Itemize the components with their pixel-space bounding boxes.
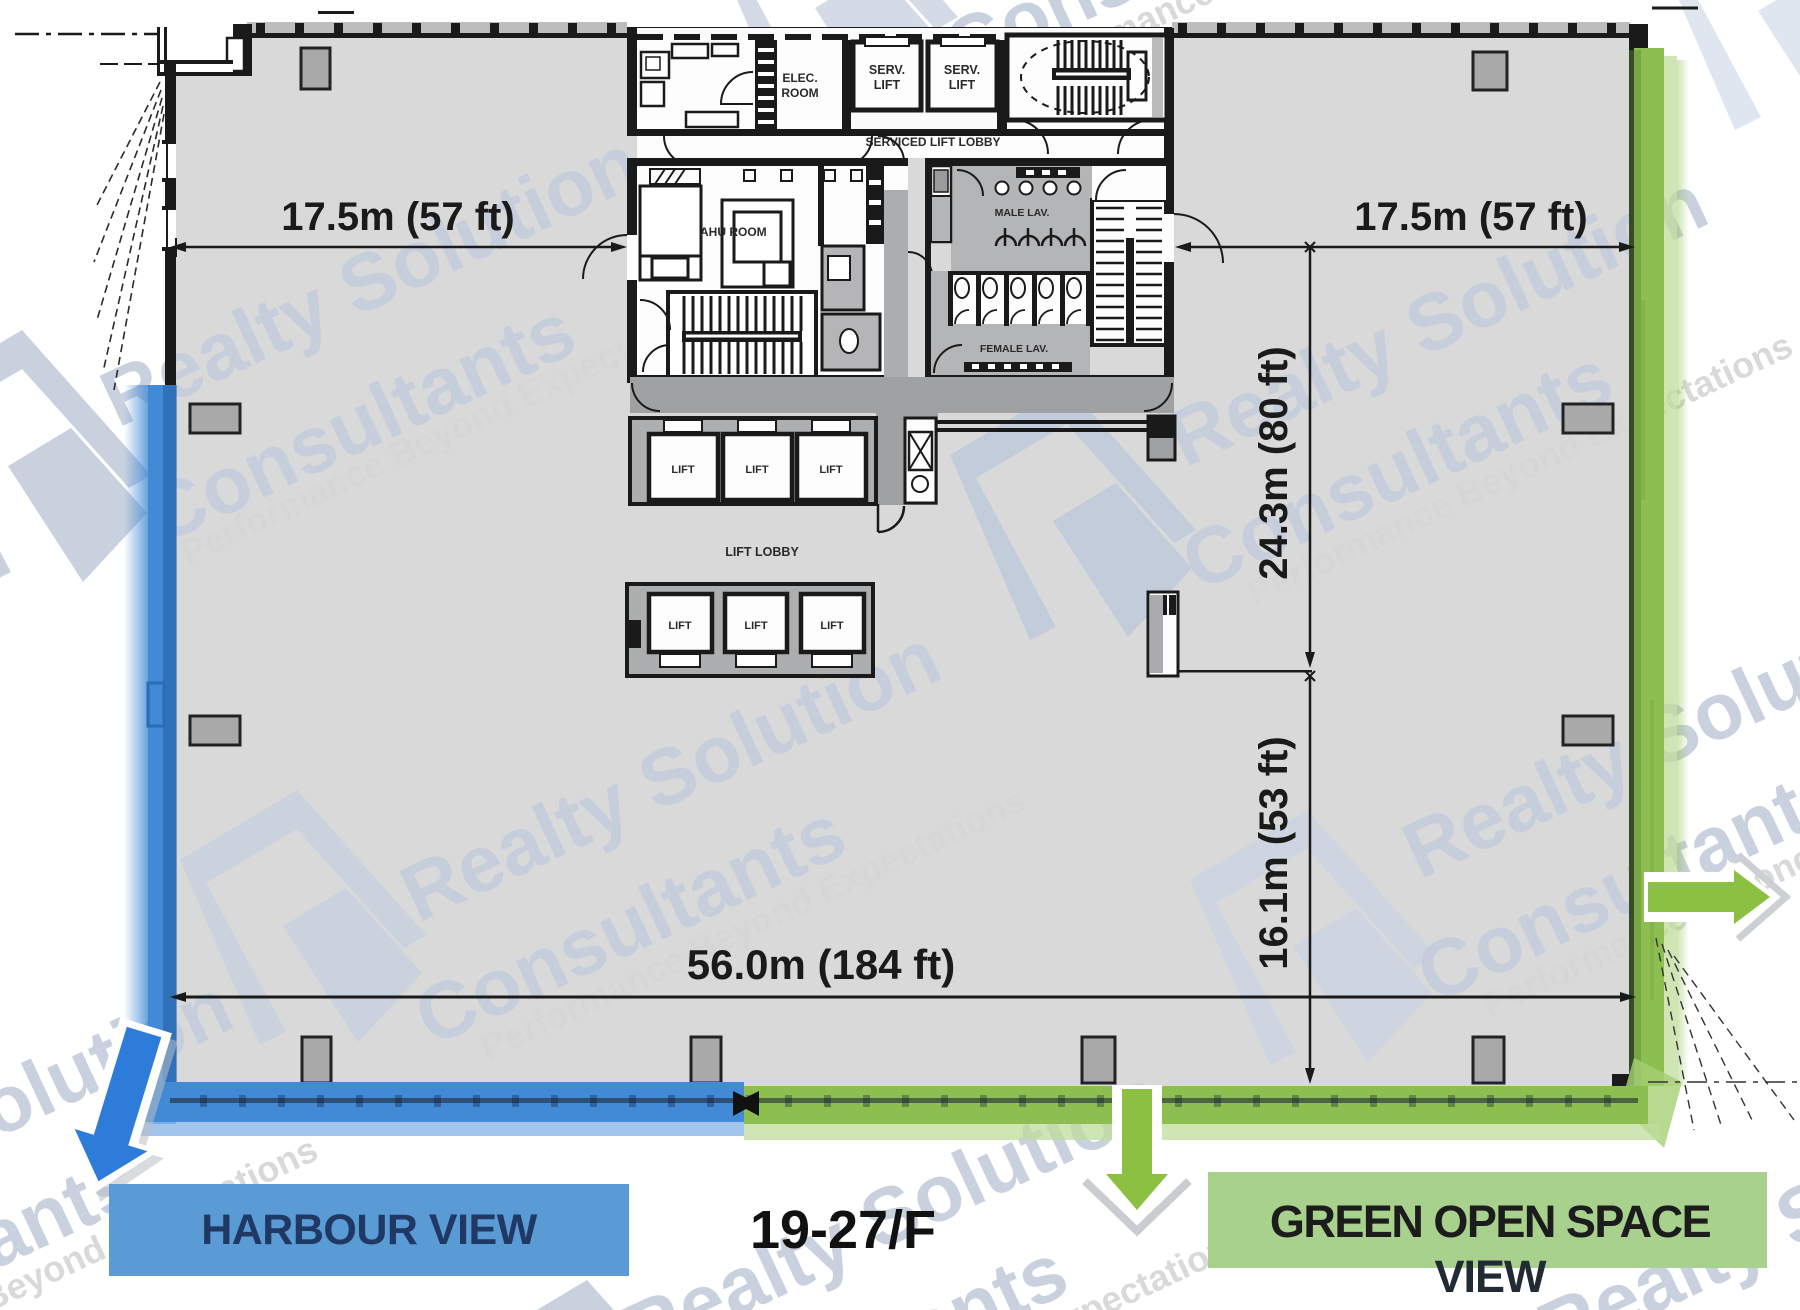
svg-text:ELEC.: ELEC. (782, 71, 817, 85)
svg-text:FEMALE LAV.: FEMALE LAV. (980, 343, 1048, 355)
svg-text:ROOM: ROOM (781, 86, 818, 100)
svg-text:LIFT: LIFT (820, 620, 843, 632)
svg-text:17.5m (57 ft): 17.5m (57 ft) (281, 195, 514, 239)
svg-text:SERV.: SERV. (869, 63, 905, 77)
svg-text:HARBOUR VIEW: HARBOUR VIEW (201, 1206, 538, 1254)
svg-text:19-27/F: 19-27/F (750, 1200, 936, 1260)
svg-text:LIFT: LIFT (745, 464, 768, 476)
svg-text:16.1m (53 ft): 16.1m (53 ft) (1252, 736, 1296, 969)
svg-text:GREEN OPEN SPACE: GREEN OPEN SPACE (1270, 1196, 1711, 1247)
svg-text:56.0m (184 ft): 56.0m (184 ft) (687, 941, 955, 988)
svg-text:LIFT LOBBY: LIFT LOBBY (725, 545, 799, 559)
svg-text:MALE LAV.: MALE LAV. (995, 207, 1050, 219)
svg-text:SERV.: SERV. (944, 63, 980, 77)
svg-text:LIFT: LIFT (874, 78, 901, 92)
svg-text:24.3m (80 ft): 24.3m (80 ft) (1252, 346, 1296, 579)
svg-text:17.5m (57 ft): 17.5m (57 ft) (1354, 195, 1587, 239)
svg-text:VIEW: VIEW (1434, 1251, 1547, 1302)
svg-text:LIFT: LIFT (819, 464, 842, 476)
svg-text:LIFT: LIFT (671, 464, 694, 476)
svg-text:LIFT: LIFT (744, 620, 767, 632)
svg-text:LIFT: LIFT (949, 78, 976, 92)
svg-text:LIFT: LIFT (668, 620, 691, 632)
svg-text:AHU ROOM: AHU ROOM (700, 225, 767, 239)
